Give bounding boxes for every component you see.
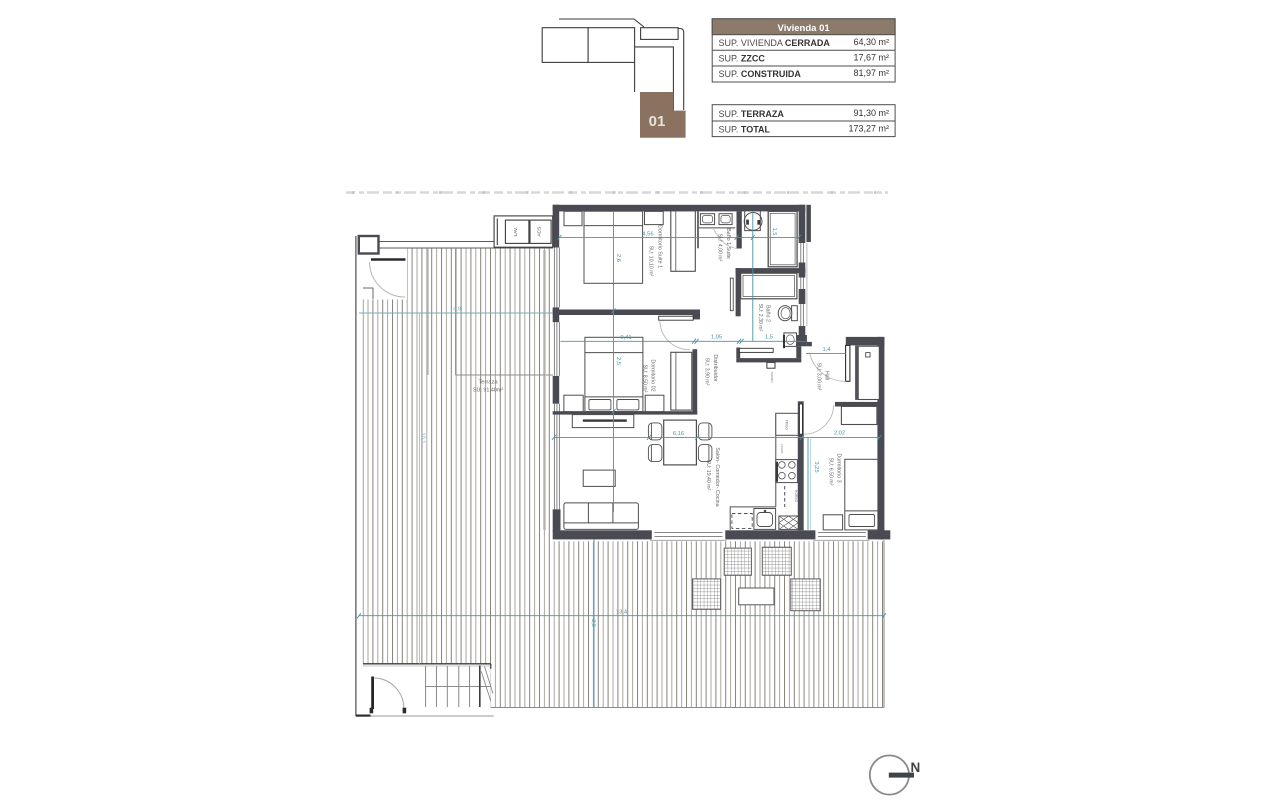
svg-text:13,4: 13,4 (616, 609, 628, 615)
svg-text:ACS: ACS (537, 227, 543, 237)
svg-text:SUP. TERRAZA: SUP. TERRAZA (719, 109, 785, 119)
svg-text:SU: 6,50 m²: SU: 6,50 m² (828, 458, 834, 486)
svg-text:6,16: 6,16 (673, 431, 684, 437)
svg-text:Terraza: Terraza (478, 380, 498, 386)
svg-text:1,05: 1,05 (711, 335, 722, 341)
svg-text:SU: 4,00 m²: SU: 4,00 m² (717, 234, 723, 262)
svg-text:SUP. VIVIENDA CERRADA: SUP. VIVIENDA CERRADA (719, 38, 831, 48)
svg-text:LAVAD.: LAVAD. (780, 444, 784, 454)
svg-text:SUP. CONSTRUIDA: SUP. CONSTRUIDA (719, 69, 802, 79)
svg-text:10,1: 10,1 (420, 433, 426, 444)
svg-text:SUP. ZZCC: SUP. ZZCC (719, 54, 766, 64)
svg-text:Distribuidor: Distribuidor (712, 354, 718, 381)
svg-text:4,9: 4,9 (453, 307, 461, 313)
svg-text:FRIGO: FRIGO (785, 420, 789, 431)
svg-text:HORNO: HORNO (794, 490, 798, 502)
svg-text:2,02: 2,02 (834, 430, 845, 436)
svg-text:Baño 2: Baño 2 (765, 305, 771, 322)
svg-text:Vivienda 01: Vivienda 01 (778, 23, 831, 34)
svg-text:81,97 m²: 81,97 m² (853, 68, 889, 78)
svg-text:17,67 m²: 17,67 m² (853, 53, 889, 63)
svg-text:2,6: 2,6 (615, 254, 621, 262)
svg-text:N: N (911, 760, 921, 775)
svg-text:1,5: 1,5 (765, 334, 773, 340)
svg-text:TERMO: TERMO (770, 372, 774, 383)
svg-text:SU: 2,30 m²: SU: 2,30 m² (757, 304, 763, 332)
svg-text:91,30 m²: 91,30 m² (853, 108, 889, 118)
svg-text:SU: 8,50 m²: SU: 8,50 m² (642, 365, 648, 393)
svg-text:2,5: 2,5 (615, 357, 621, 365)
svg-text:Hall: Hall (824, 371, 830, 380)
svg-text:3,25: 3,25 (813, 461, 819, 472)
svg-text:SUP. TOTAL: SUP. TOTAL (719, 125, 771, 135)
svg-text:SU: 19,40 m²: SU: 19,40 m² (705, 460, 711, 491)
svg-text:173,27 m²: 173,27 m² (848, 124, 889, 134)
svg-text:64,30 m²: 64,30 m² (853, 37, 889, 47)
svg-text:SU: 10,10 m²: SU: 10,10 m² (648, 246, 654, 277)
svg-text:Dormitorio Suite 1: Dormitorio Suite 1 (657, 225, 663, 268)
svg-text:SU: 3,00 m²: SU: 3,00 m² (816, 363, 822, 391)
svg-text:SU: 3,90 m²: SU: 3,90 m² (704, 358, 710, 386)
svg-text:Dormitorio 02: Dormitorio 02 (650, 359, 656, 391)
svg-text:1,4: 1,4 (822, 347, 831, 353)
svg-text:2,9: 2,9 (590, 619, 596, 627)
svg-text:Dormitorio 3: Dormitorio 3 (836, 453, 842, 482)
svg-text:LAV.: LAV. (513, 227, 519, 237)
svg-text:Baño 1 Suite: Baño 1 Suite (725, 228, 731, 259)
svg-text:SU: 91,40m²: SU: 91,40m² (473, 388, 503, 394)
svg-text:1,5: 1,5 (771, 228, 777, 236)
svg-text:01: 01 (649, 113, 666, 130)
svg-text:Salón- Comedor- Cocina: Salón- Comedor- Cocina (714, 447, 720, 506)
svg-text:0,41: 0,41 (620, 335, 631, 341)
svg-text:4,56: 4,56 (642, 232, 653, 238)
